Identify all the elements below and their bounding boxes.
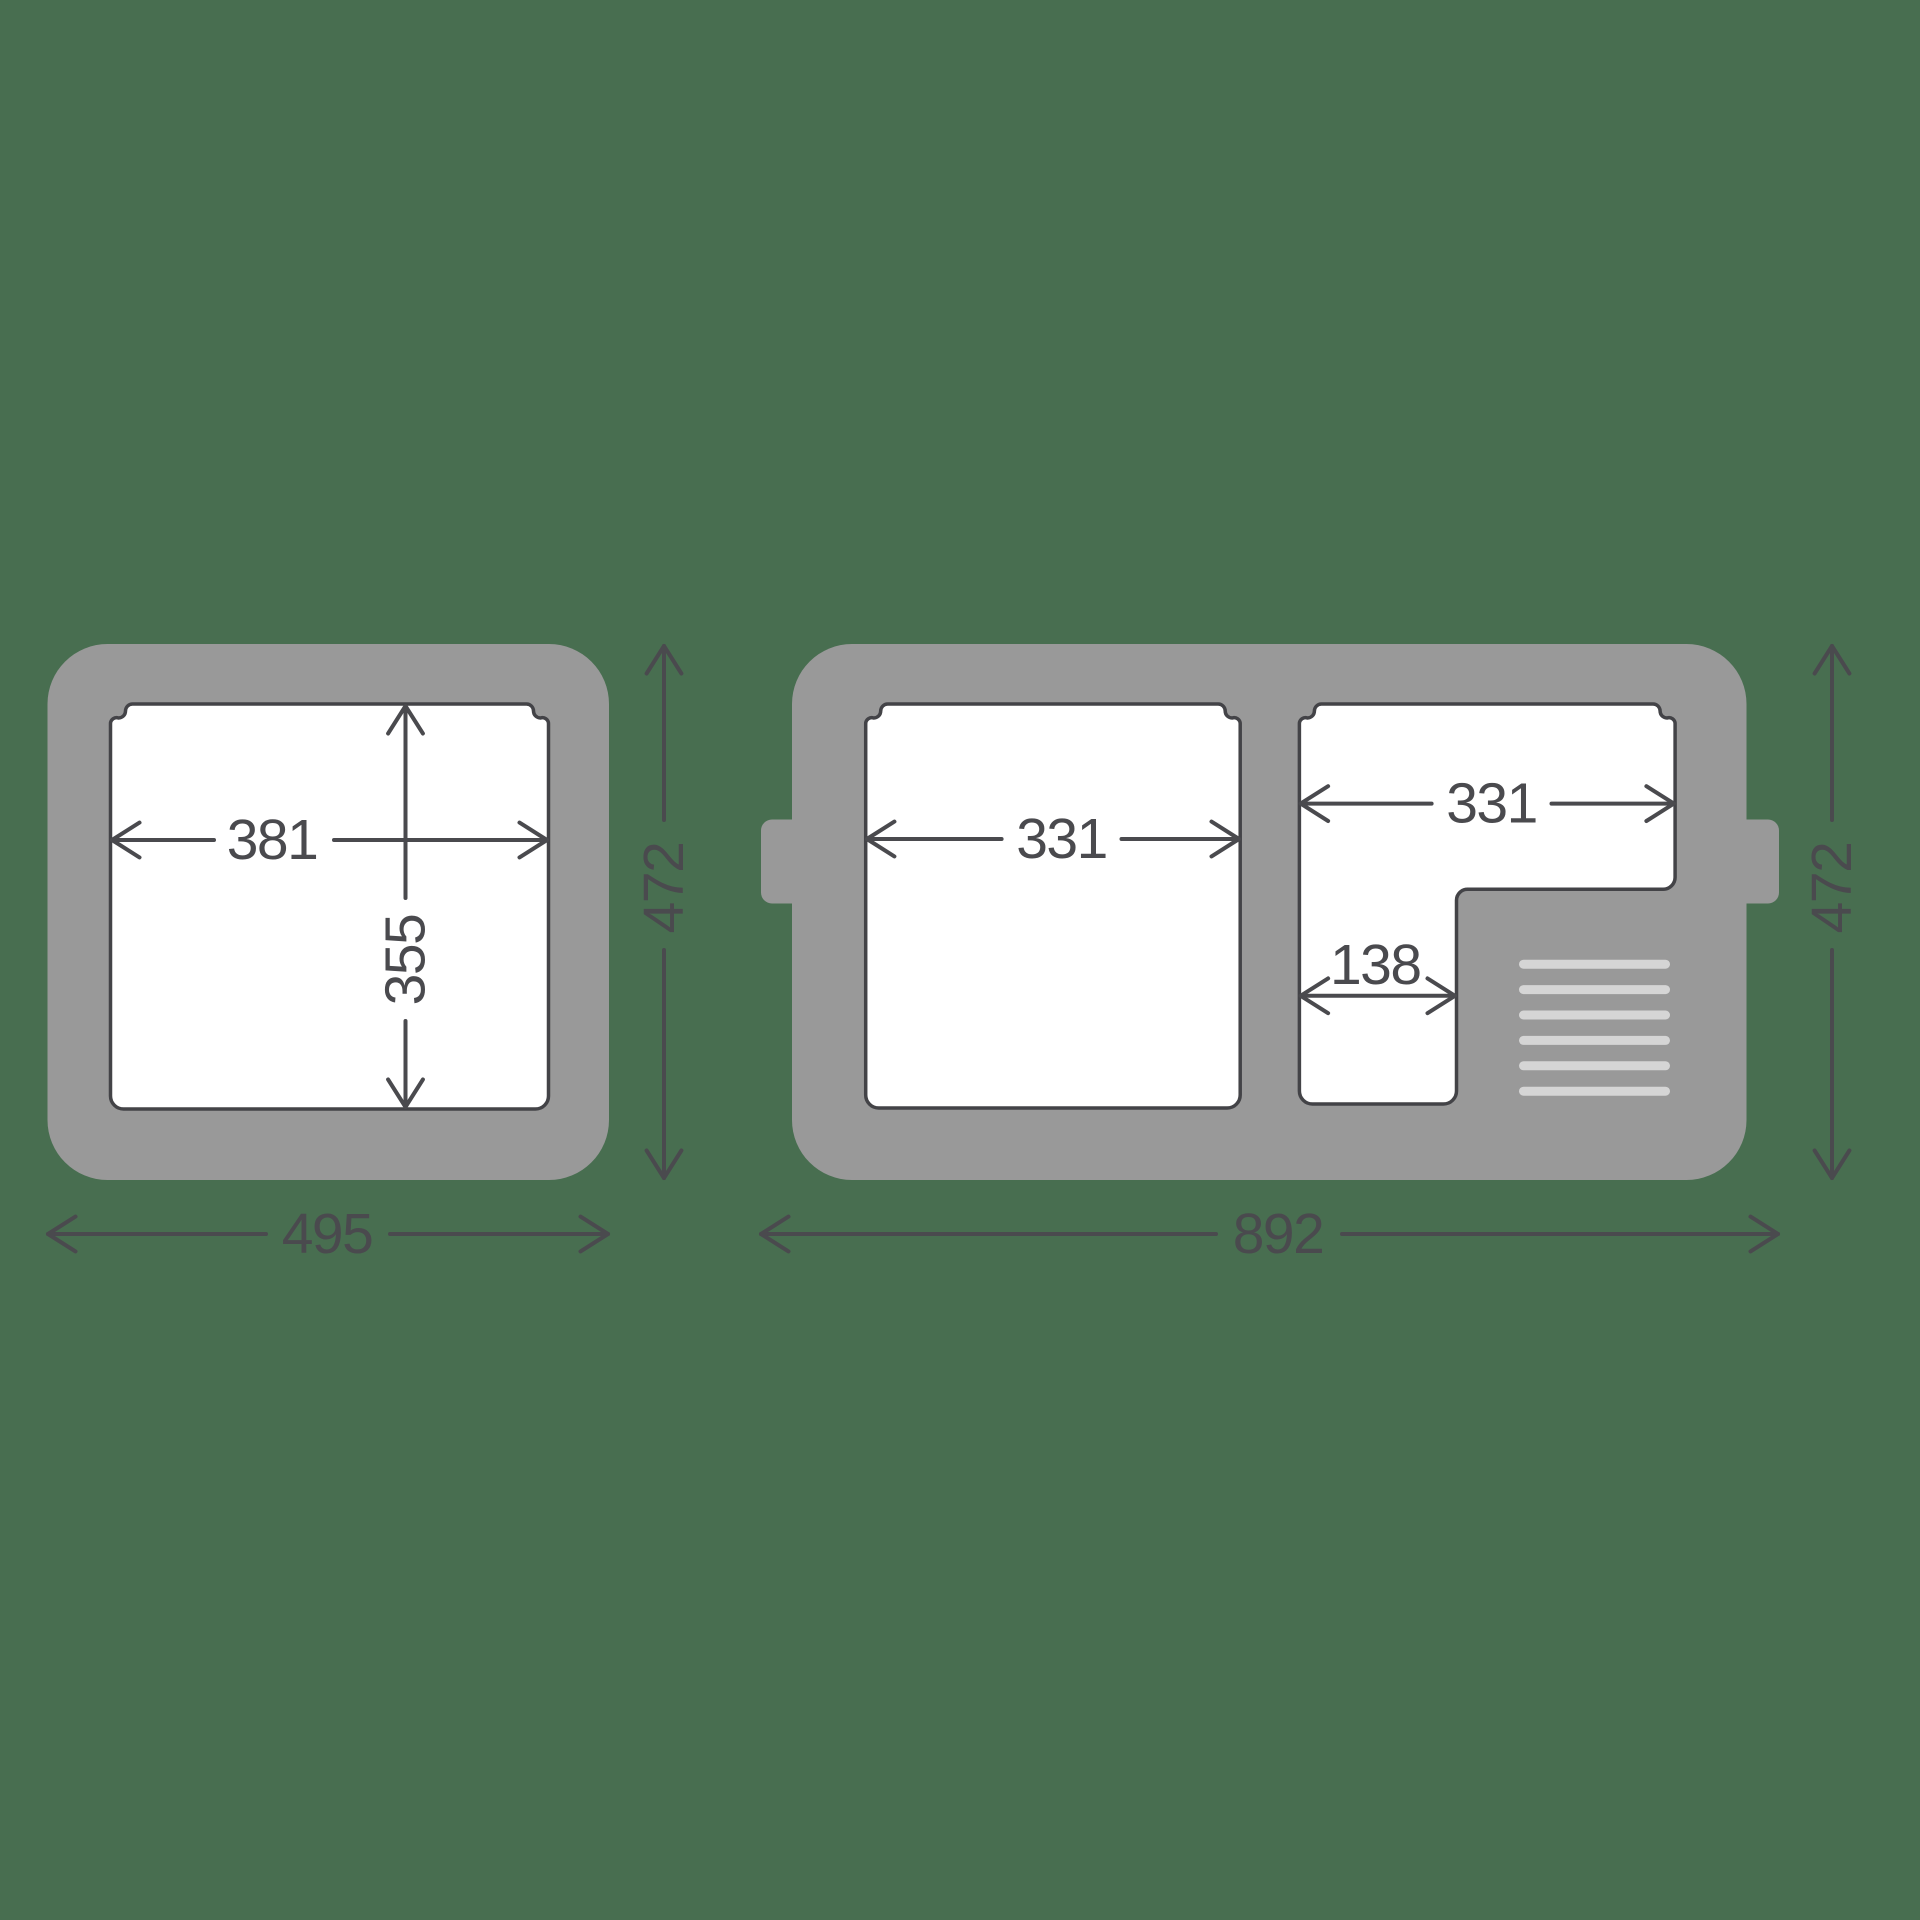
svg-text:472: 472 xyxy=(632,843,696,934)
svg-text:355: 355 xyxy=(374,915,438,1006)
svg-text:331: 331 xyxy=(1446,772,1537,836)
svg-text:381: 381 xyxy=(227,808,318,872)
svg-text:472: 472 xyxy=(1800,843,1864,934)
svg-text:331: 331 xyxy=(1016,807,1107,871)
svg-text:495: 495 xyxy=(282,1202,373,1266)
svg-text:138: 138 xyxy=(1330,933,1421,997)
svg-text:892: 892 xyxy=(1233,1202,1324,1266)
